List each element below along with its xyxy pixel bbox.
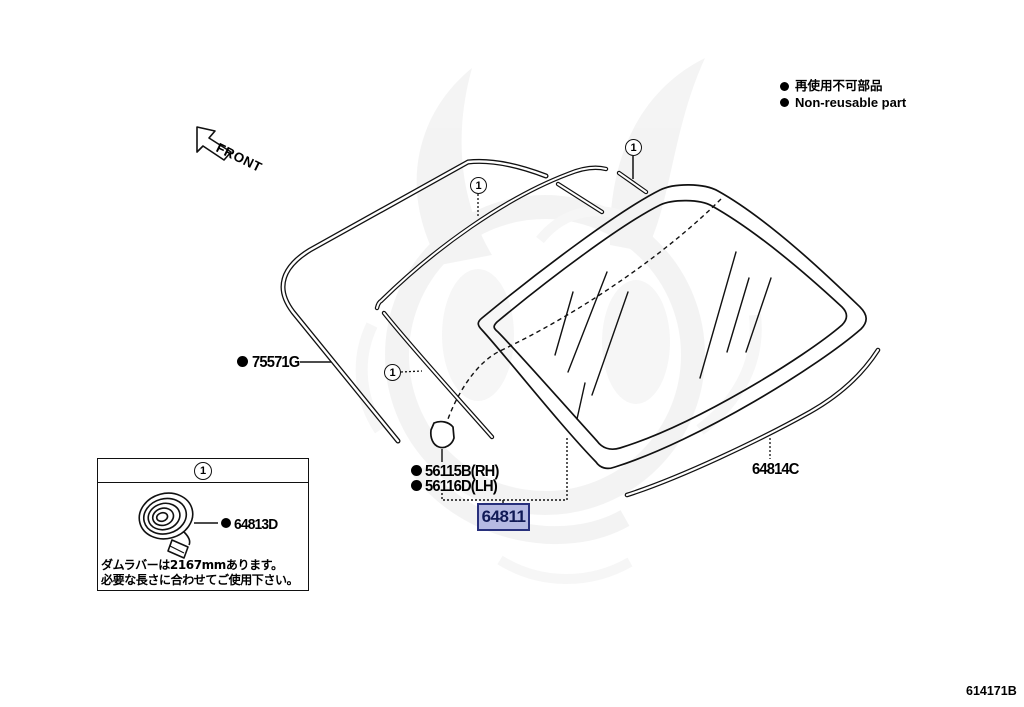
part-label-75571g[interactable]: 75571G xyxy=(252,355,299,371)
callout-1-marker: 1 xyxy=(625,139,642,156)
inset-note-line2: 必要な長さに合わせてご使用下さい。 xyxy=(101,574,298,586)
non-reusable-bullet-icon xyxy=(780,98,789,107)
non-reusable-bullet-icon xyxy=(411,465,422,476)
non-reusable-bullet-icon xyxy=(221,518,231,528)
inset-note-line1: ダムラバーは2167mmあります。 xyxy=(101,559,283,571)
part-label-64811-highlighted[interactable]: 64811 xyxy=(477,503,530,531)
watermark xyxy=(362,58,756,579)
non-reusable-bullet-icon xyxy=(411,480,422,491)
non-reusable-bullet-icon xyxy=(780,82,789,91)
callout-1-marker: 1 xyxy=(194,462,212,480)
part-label-64814c[interactable]: 64814C xyxy=(752,462,799,478)
parts-diagram-page: FRONT 再使用不可部品 Non-reusable part 1 1 1 75… xyxy=(0,0,1024,707)
legend-jp-text: 再使用不可部品 xyxy=(795,80,883,93)
part-label-56116d-lh[interactable]: 56116D(LH) xyxy=(425,479,497,495)
non-reusable-bullet-icon xyxy=(237,356,248,367)
callout-1-marker: 1 xyxy=(384,364,401,381)
legend-en-text: Non-reusable part xyxy=(795,96,906,109)
drawing-id: 614171B xyxy=(966,685,1017,698)
callout-1-marker: 1 xyxy=(470,177,487,194)
part-label-64813d[interactable]: 64813D xyxy=(234,517,277,532)
